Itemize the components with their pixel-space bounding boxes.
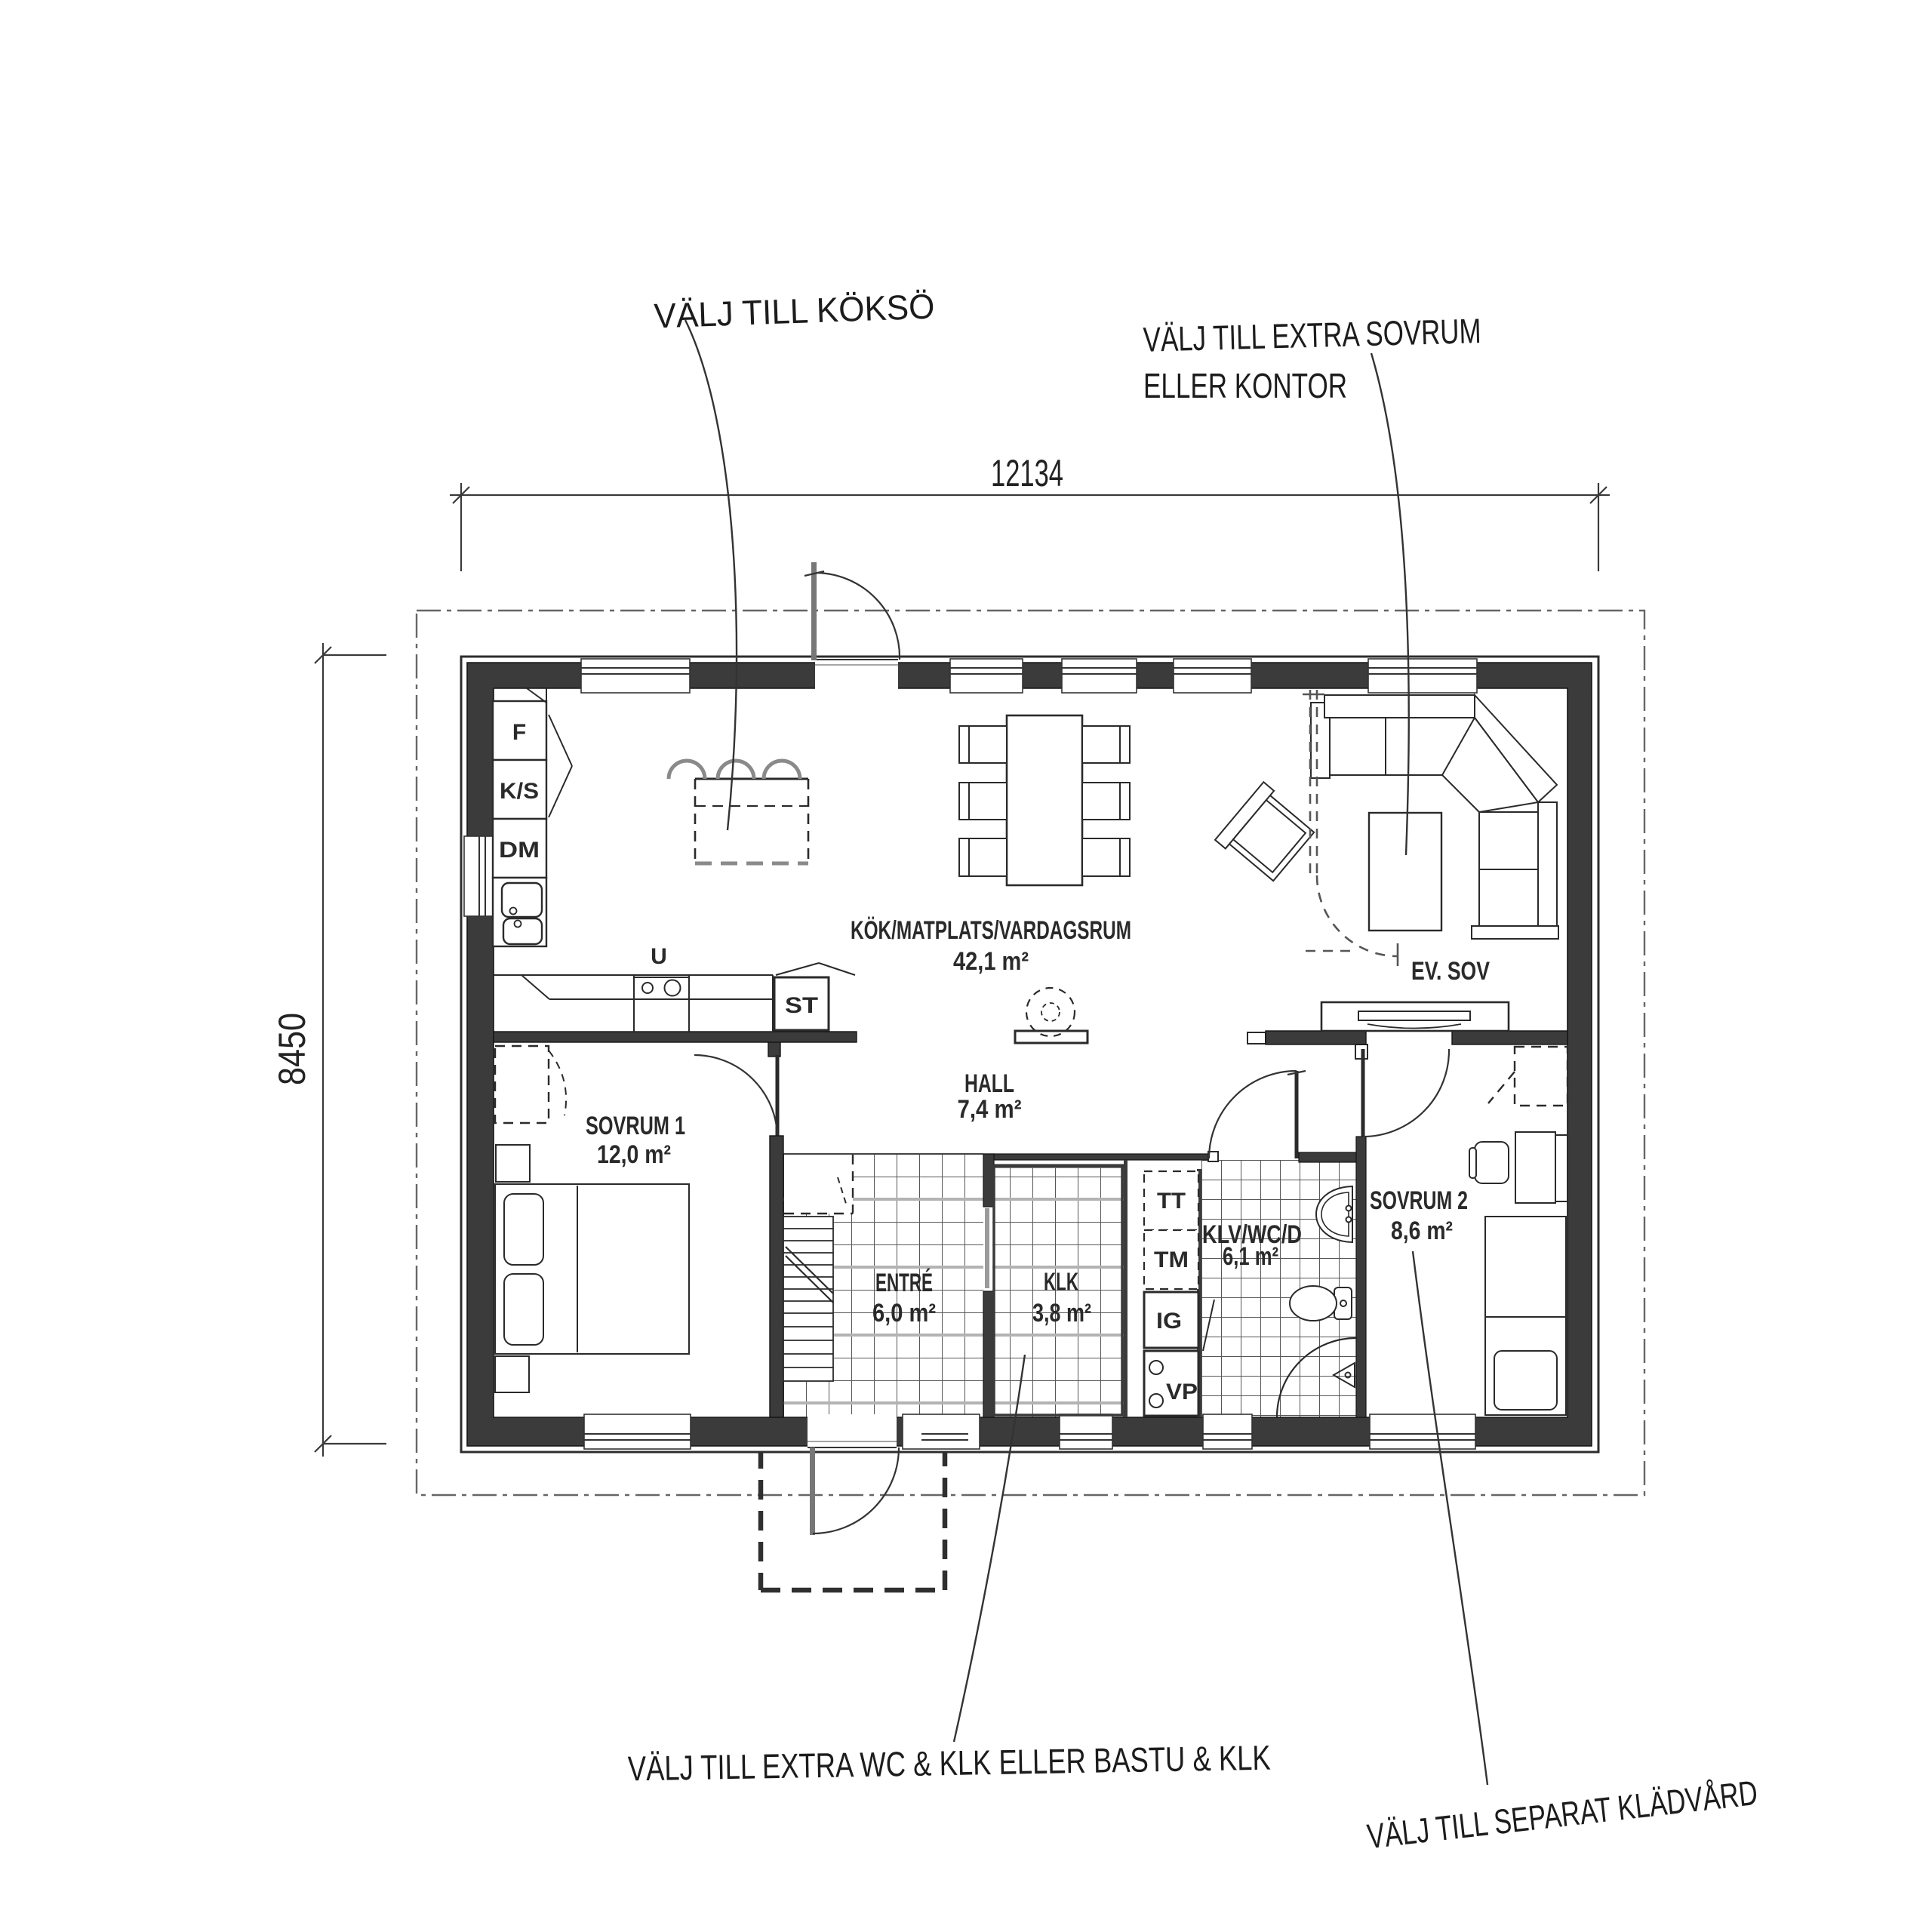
svg-text:6,1 m²: 6,1 m² <box>1223 1242 1278 1271</box>
svg-text:KLK: KLK <box>1044 1268 1078 1297</box>
svg-text:SOVRUM 1: SOVRUM 1 <box>586 1112 685 1140</box>
svg-text:SOVRUM 2: SOVRUM 2 <box>1370 1186 1468 1215</box>
svg-text:8,6 m²: 8,6 m² <box>1391 1217 1453 1245</box>
svg-text:U: U <box>651 944 667 969</box>
svg-text:6,0 m²: 6,0 m² <box>872 1299 936 1327</box>
svg-text:HALL: HALL <box>964 1069 1014 1098</box>
svg-text:ELLER KONTOR: ELLER KONTOR <box>1143 366 1347 405</box>
svg-text:K/S: K/S <box>500 779 539 804</box>
svg-text:IG: IG <box>1156 1309 1182 1334</box>
svg-text:8450: 8450 <box>271 1013 313 1085</box>
svg-text:7,4 m²: 7,4 m² <box>958 1095 1022 1124</box>
svg-text:F: F <box>512 720 526 745</box>
svg-text:TT: TT <box>1157 1189 1186 1214</box>
svg-text:ST: ST <box>785 993 818 1018</box>
svg-text:EV. SOV: EV. SOV <box>1411 957 1490 986</box>
svg-text:12134: 12134 <box>991 452 1063 494</box>
svg-text:DM: DM <box>499 838 540 863</box>
svg-text:3,8 m²: 3,8 m² <box>1032 1299 1091 1327</box>
svg-text:12,0 m²: 12,0 m² <box>597 1140 671 1169</box>
svg-text:VP: VP <box>1166 1380 1198 1404</box>
svg-text:ENTRÉ: ENTRÉ <box>875 1269 933 1297</box>
svg-text:42,1 m²: 42,1 m² <box>953 947 1029 976</box>
svg-text:KÖK/MATPLATS/VARDAGSRUM: KÖK/MATPLATS/VARDAGSRUM <box>851 916 1131 945</box>
svg-text:TM: TM <box>1154 1247 1189 1272</box>
